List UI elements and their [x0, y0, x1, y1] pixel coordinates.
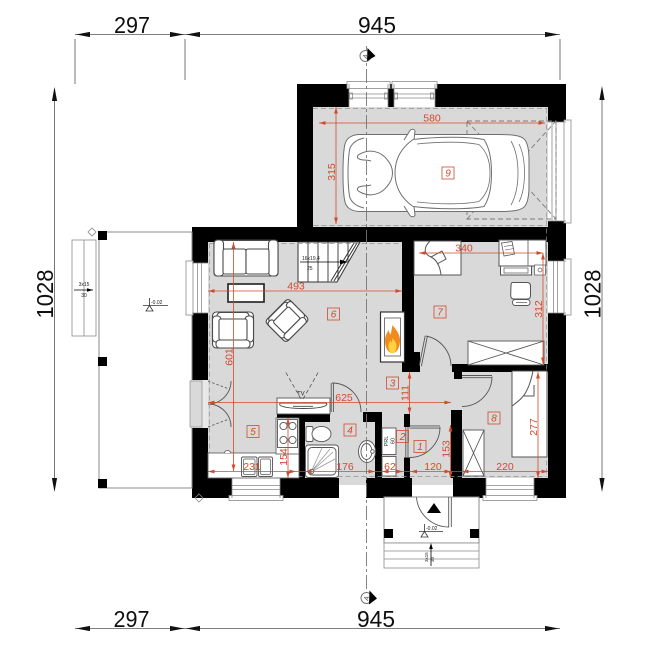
svg-text:176: 176	[336, 461, 354, 473]
svg-text:60: 60	[391, 438, 397, 444]
svg-text:154: 154	[278, 448, 290, 466]
svg-text:2: 2	[399, 432, 406, 443]
svg-text:120: 120	[424, 461, 442, 473]
svg-text:30: 30	[81, 293, 87, 299]
svg-text:1028: 1028	[580, 270, 606, 319]
svg-text:297: 297	[114, 606, 150, 632]
svg-text:277: 277	[528, 418, 540, 436]
svg-text:625: 625	[335, 392, 353, 404]
svg-text:3x15: 3x15	[424, 552, 429, 562]
svg-text:945: 945	[358, 12, 396, 38]
svg-text:945: 945	[357, 606, 395, 632]
svg-text:1028: 1028	[32, 270, 58, 319]
svg-text:312: 312	[533, 300, 545, 318]
svg-text:580: 580	[423, 113, 441, 125]
svg-text:493: 493	[287, 281, 305, 293]
svg-text:TV: TV	[297, 392, 305, 398]
svg-text:220: 220	[496, 461, 514, 473]
svg-text:8: 8	[491, 414, 497, 425]
svg-text:601: 601	[224, 348, 236, 366]
svg-text:-0.02: -0.02	[426, 526, 438, 532]
svg-text:16x19,4: 16x19,4	[302, 256, 320, 262]
svg-text:315: 315	[326, 163, 338, 181]
svg-text:9: 9	[445, 169, 451, 180]
svg-text:1: 1	[417, 442, 423, 453]
svg-text:62: 62	[384, 461, 396, 473]
svg-text:111: 111	[400, 385, 412, 401]
svg-text:153: 153	[441, 440, 453, 458]
svg-text:231: 231	[243, 461, 261, 473]
svg-text:4: 4	[347, 426, 353, 437]
svg-text:-0.02: -0.02	[151, 300, 163, 306]
svg-text:3x15: 3x15	[79, 282, 90, 288]
svg-text:25: 25	[307, 266, 313, 272]
svg-text:297: 297	[114, 12, 150, 38]
svg-text:7: 7	[437, 308, 443, 319]
svg-text:30: 30	[430, 556, 435, 562]
svg-text:3: 3	[390, 379, 396, 390]
svg-text:5: 5	[250, 427, 256, 438]
svg-text:340: 340	[455, 243, 473, 255]
svg-text:6: 6	[331, 310, 337, 321]
svg-text:PRL: PRL	[384, 436, 390, 447]
